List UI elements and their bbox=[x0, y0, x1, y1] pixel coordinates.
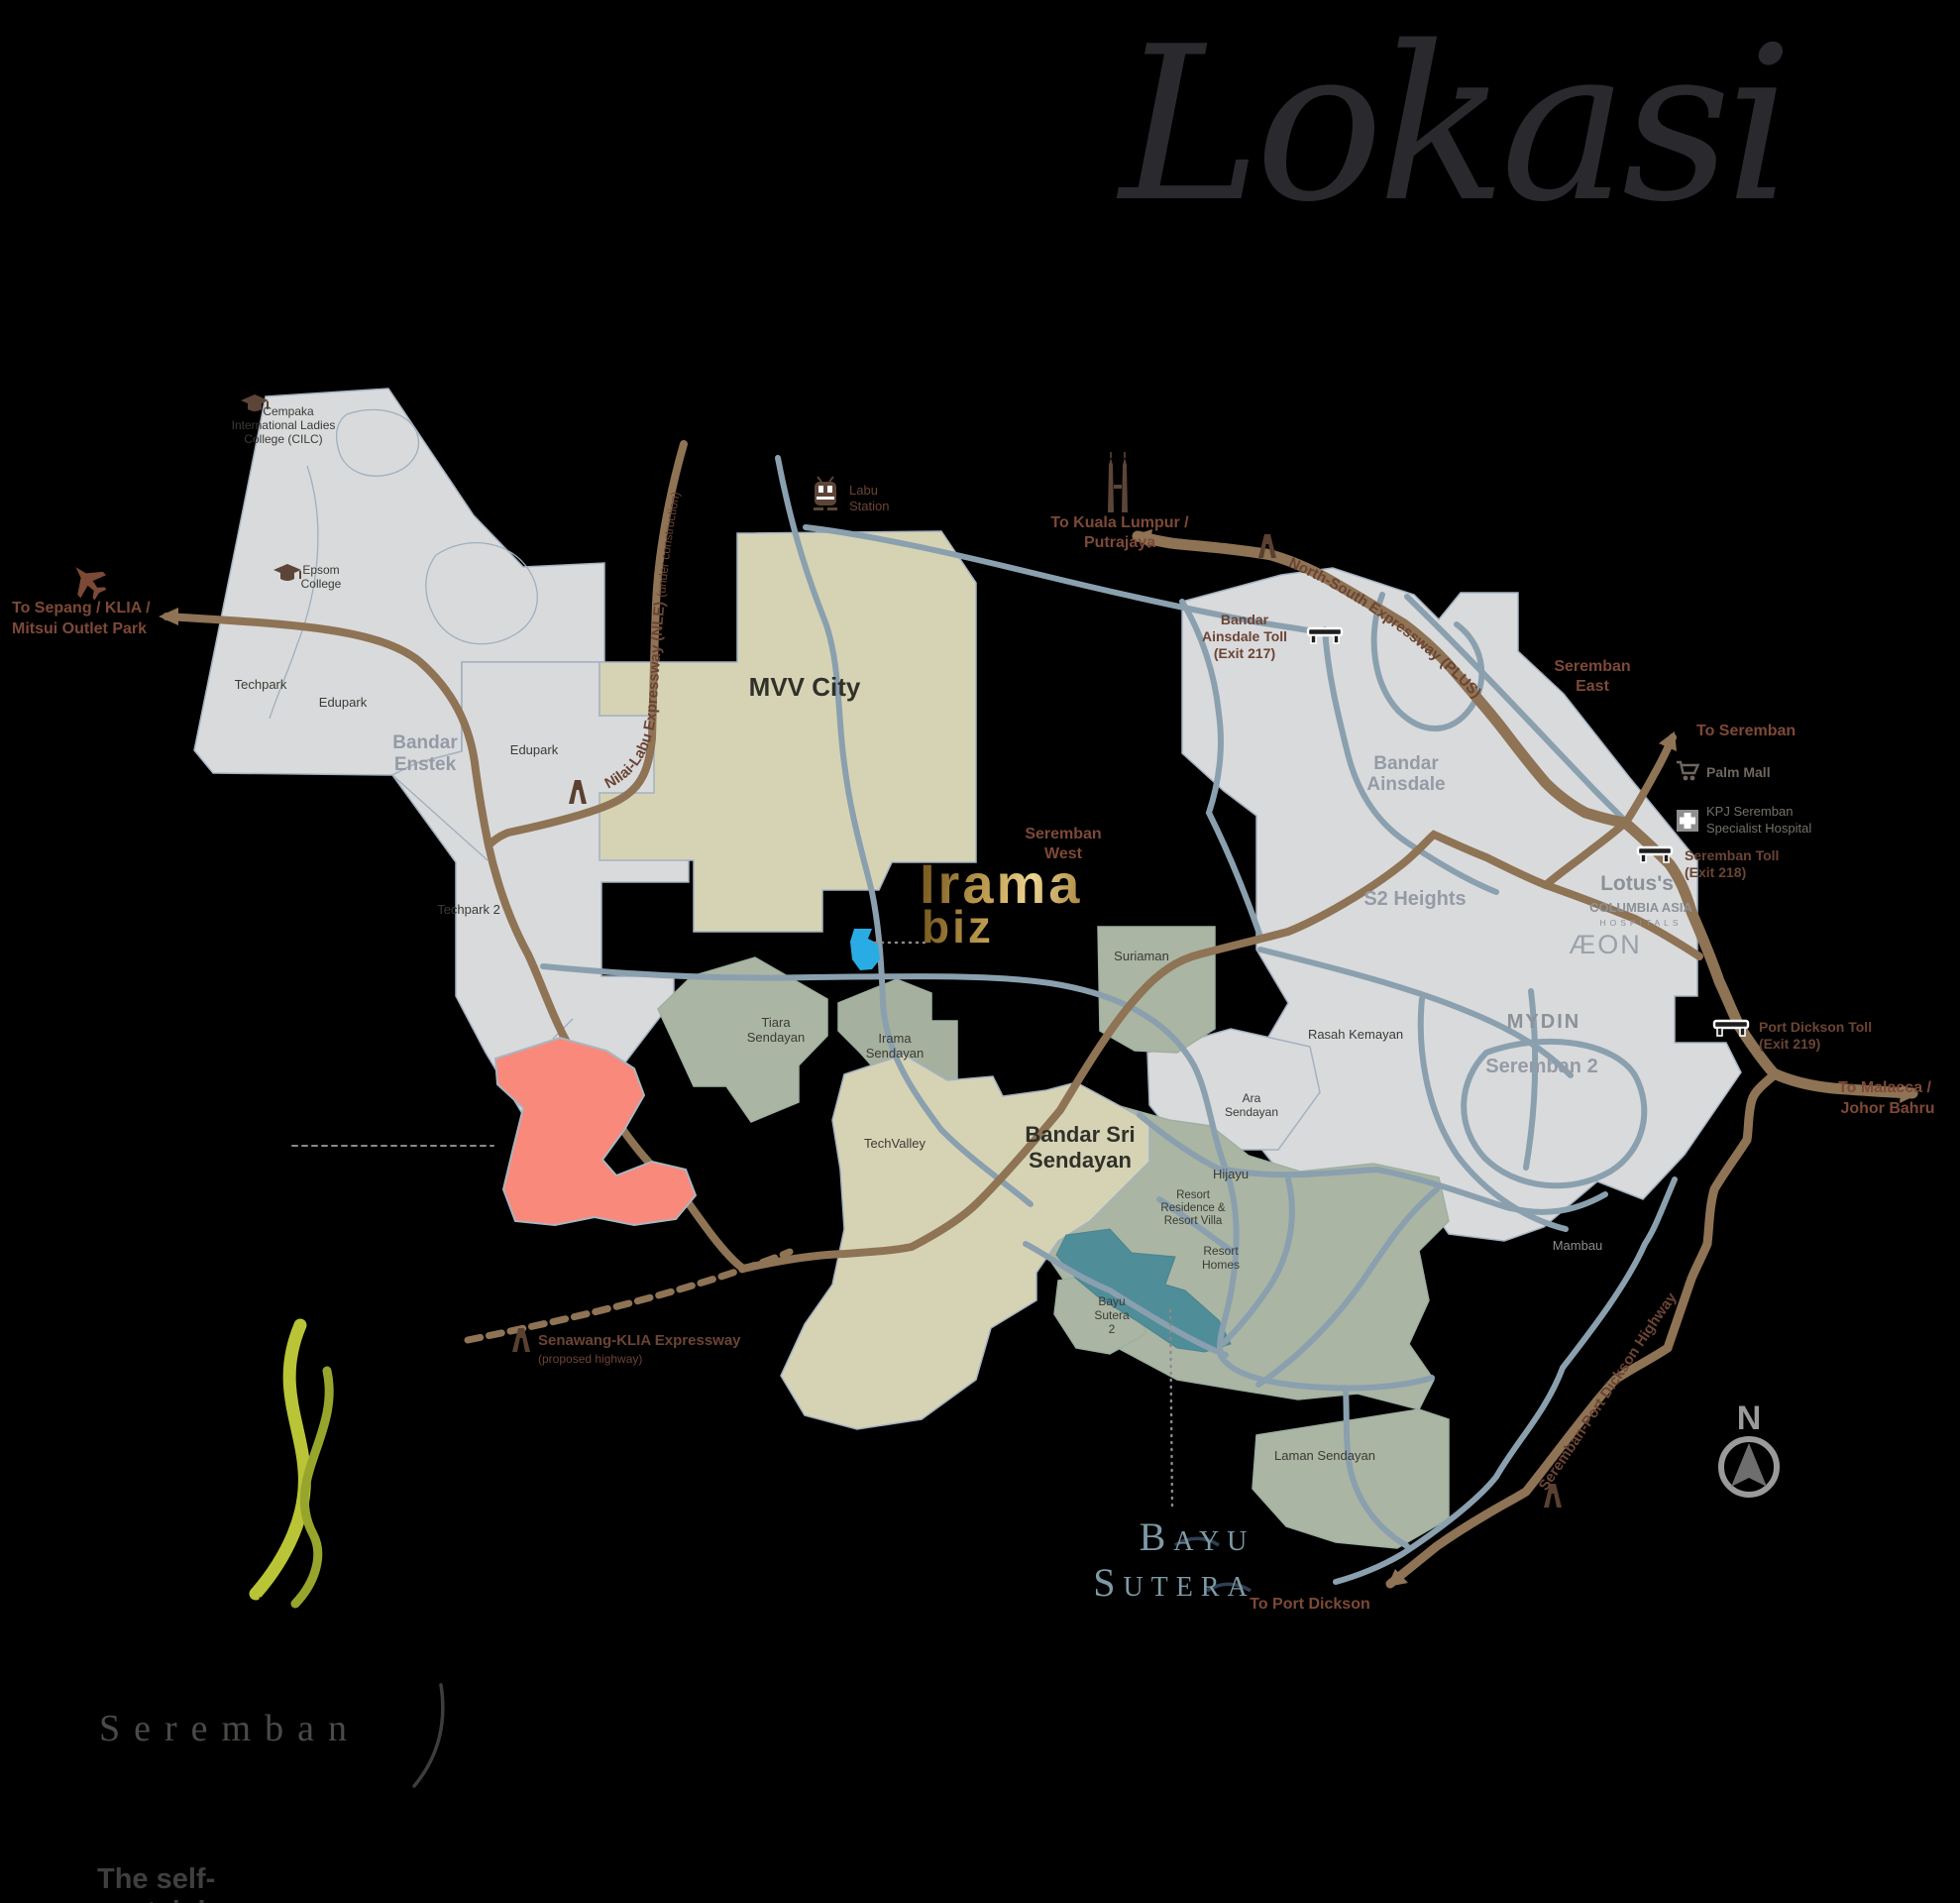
area-label-techpark: Techpark bbox=[235, 677, 287, 692]
area-label-bayu2-3: 2 bbox=[1109, 1322, 1116, 1336]
area-label-resort-res-3: Resort Villa bbox=[1164, 1215, 1223, 1227]
toll-seremban-2: (Exit 218) bbox=[1685, 864, 1746, 880]
dir-port-dickson: To Port Dickson bbox=[1250, 1596, 1370, 1613]
landmark-epsom-1: Epsom bbox=[302, 563, 339, 577]
compass-label: N bbox=[1737, 1399, 1762, 1437]
hospital-cross-icon bbox=[1677, 810, 1698, 832]
toll-pd-1: Port Dickson Toll bbox=[1759, 1019, 1872, 1035]
area-label-seremban-west-1: Seremban bbox=[1025, 826, 1101, 842]
landmark-epsom-2: College bbox=[301, 577, 342, 591]
lokasi-map-page: N Techpark Edupark Edupark Techpark 2 Ba… bbox=[0, 0, 1960, 1903]
landmark-lotus: Lotus's bbox=[1600, 872, 1674, 895]
dir-malacca-1: To Malacca / bbox=[1838, 1079, 1932, 1096]
area-label-bandar-enstek-1: Bandar bbox=[392, 732, 458, 753]
toll-pd-2: (Exit 219) bbox=[1759, 1036, 1820, 1052]
logo-word-seremban: Seremban bbox=[99, 1707, 361, 1750]
area-label-seremban2: Seremban 2 bbox=[1485, 1056, 1597, 1077]
landmark-palm-mall: Palm Mall bbox=[1706, 764, 1771, 780]
area-label-bayu2-1: Bayu bbox=[1098, 1294, 1125, 1308]
area-label-mambau: Mambau bbox=[1553, 1238, 1603, 1253]
dir-sepang-2: Mitsui Outlet Park bbox=[12, 620, 147, 637]
logo-word-sri: Sri bbox=[18, 1612, 78, 1670]
area-label-irama-sendayan-1: Irama bbox=[878, 1031, 912, 1046]
bayu-logo-line1: Bayu bbox=[1090, 1514, 1258, 1560]
landmark-cempaka-3: College (CILC) bbox=[244, 432, 322, 446]
area-label-bandar-enstek-2: Enstek bbox=[394, 754, 457, 775]
landmark-kpj-2: Specialist Hospital bbox=[1706, 821, 1811, 836]
landmark-cempaka-1: Cempaka bbox=[263, 404, 314, 418]
area-label-seremban-east-1: Seremban bbox=[1554, 658, 1630, 675]
area-label-resort-res-1: Resort bbox=[1176, 1189, 1211, 1201]
landmark-cempaka-2: International Ladies bbox=[232, 418, 336, 432]
area-label-resort-res-2: Residence & bbox=[1160, 1202, 1226, 1214]
area-label-resort-homes-1: Resort bbox=[1203, 1244, 1239, 1258]
landmark-columbia-1: COLUMBIA ASIA bbox=[1589, 900, 1692, 915]
area-label-techvalley: TechValley bbox=[864, 1136, 926, 1151]
toll-seremban-1: Seremban Toll bbox=[1685, 847, 1779, 863]
logo-y-swash bbox=[414, 1685, 443, 1786]
area-label-irama-sendayan-2: Sendayan bbox=[866, 1046, 925, 1061]
page-title: Lokasi bbox=[1120, 18, 1788, 231]
dir-kl-1: To Kuala Lumpur / bbox=[1050, 514, 1189, 531]
area-label-suriaman: Suriaman bbox=[1114, 949, 1169, 963]
hwy-label-senawang: Senawang-KLIA Expressway bbox=[538, 1332, 741, 1349]
area-label-edupark-west: Edupark bbox=[319, 695, 368, 710]
area-label-tiara-2: Sendayan bbox=[747, 1030, 806, 1045]
area-label-bss-1: Bandar Sri bbox=[1025, 1122, 1135, 1147]
toll-ainsdale-1: Bandar bbox=[1221, 612, 1269, 627]
logo-tagline: The self-sustaining city bbox=[97, 1863, 241, 1903]
area-label-mvv-city: MVV City bbox=[749, 672, 861, 702]
logo-word-bandar: Bandar bbox=[18, 1475, 201, 1548]
area-label-ara-2: Sendayan bbox=[1225, 1105, 1278, 1119]
compass-arrow-icon bbox=[1731, 1443, 1767, 1487]
landmark-labu-2: Station bbox=[849, 499, 889, 513]
area-label-ara-1: Ara bbox=[1243, 1091, 1261, 1105]
dir-kl-2: Putrajaya bbox=[1084, 534, 1155, 551]
area-label-bandar-ainsdale-1: Bandar bbox=[1373, 753, 1439, 774]
landmark-columbia-2: HOSPITALS bbox=[1599, 918, 1682, 928]
bayu-sutera-logo: Bayu Sutera bbox=[1090, 1514, 1258, 1606]
bayu-logo-line2: Sutera bbox=[1090, 1560, 1258, 1606]
area-label-bayu2-2: Sutera bbox=[1094, 1308, 1130, 1322]
irama-biz-logo: Irama biz bbox=[920, 860, 1082, 948]
toll-ainsdale-3: (Exit 217) bbox=[1214, 645, 1275, 661]
landmark-kpj-1: KPJ Seremban bbox=[1706, 804, 1793, 819]
landmark-aeon: ÆON bbox=[1569, 930, 1642, 959]
twin-towers-icon bbox=[1108, 452, 1128, 512]
hwy-label-spd: Seremban-Port Dickson Highway bbox=[1536, 1289, 1681, 1495]
area-label-seremban-east-2: East bbox=[1576, 678, 1609, 695]
landmark-labu-1: Labu bbox=[849, 483, 878, 498]
logo-word-sendayan: Sendayan bbox=[94, 1578, 456, 1685]
area-label-edupark-east: Edupark bbox=[510, 742, 559, 757]
area-label-bss-2: Sendayan bbox=[1029, 1148, 1132, 1173]
area-label-techpark2: Techpark 2 bbox=[437, 902, 500, 917]
north-compass: N bbox=[1721, 1399, 1777, 1495]
dir-malacca-2: Johor Bahru bbox=[1840, 1100, 1934, 1117]
area-label-tiara-1: Tiara bbox=[761, 1015, 791, 1030]
area-label-hijayu: Hijayu bbox=[1213, 1167, 1249, 1181]
toll-ainsdale-2: Ainsdale Toll bbox=[1202, 628, 1287, 644]
landmark-mydin: MYDIN bbox=[1507, 1011, 1580, 1033]
toll-port-dickson-icon bbox=[1714, 1021, 1748, 1036]
region-group bbox=[194, 389, 1741, 1548]
area-label-rasah-kemayan: Rasah Kemayan bbox=[1308, 1027, 1403, 1042]
region-suriaman bbox=[1098, 927, 1215, 1053]
dir-sepang-1: To Sepang / KLIA / bbox=[12, 600, 151, 616]
shopping-cart-icon bbox=[1677, 762, 1698, 780]
dir-seremban: To Seremban bbox=[1696, 723, 1796, 739]
area-label-resort-homes-2: Homes bbox=[1202, 1258, 1240, 1272]
hwy-label-senawang-note: (proposed highway) bbox=[538, 1352, 642, 1366]
airplane-icon bbox=[63, 556, 114, 607]
area-label-laman: Laman Sendayan bbox=[1274, 1448, 1375, 1463]
area-label-bandar-ainsdale-2: Ainsdale bbox=[1366, 774, 1445, 795]
area-label-s2-heights: S2 Heights bbox=[1363, 888, 1466, 910]
region-development-highlight bbox=[495, 1038, 696, 1225]
train-station-icon bbox=[814, 477, 837, 510]
